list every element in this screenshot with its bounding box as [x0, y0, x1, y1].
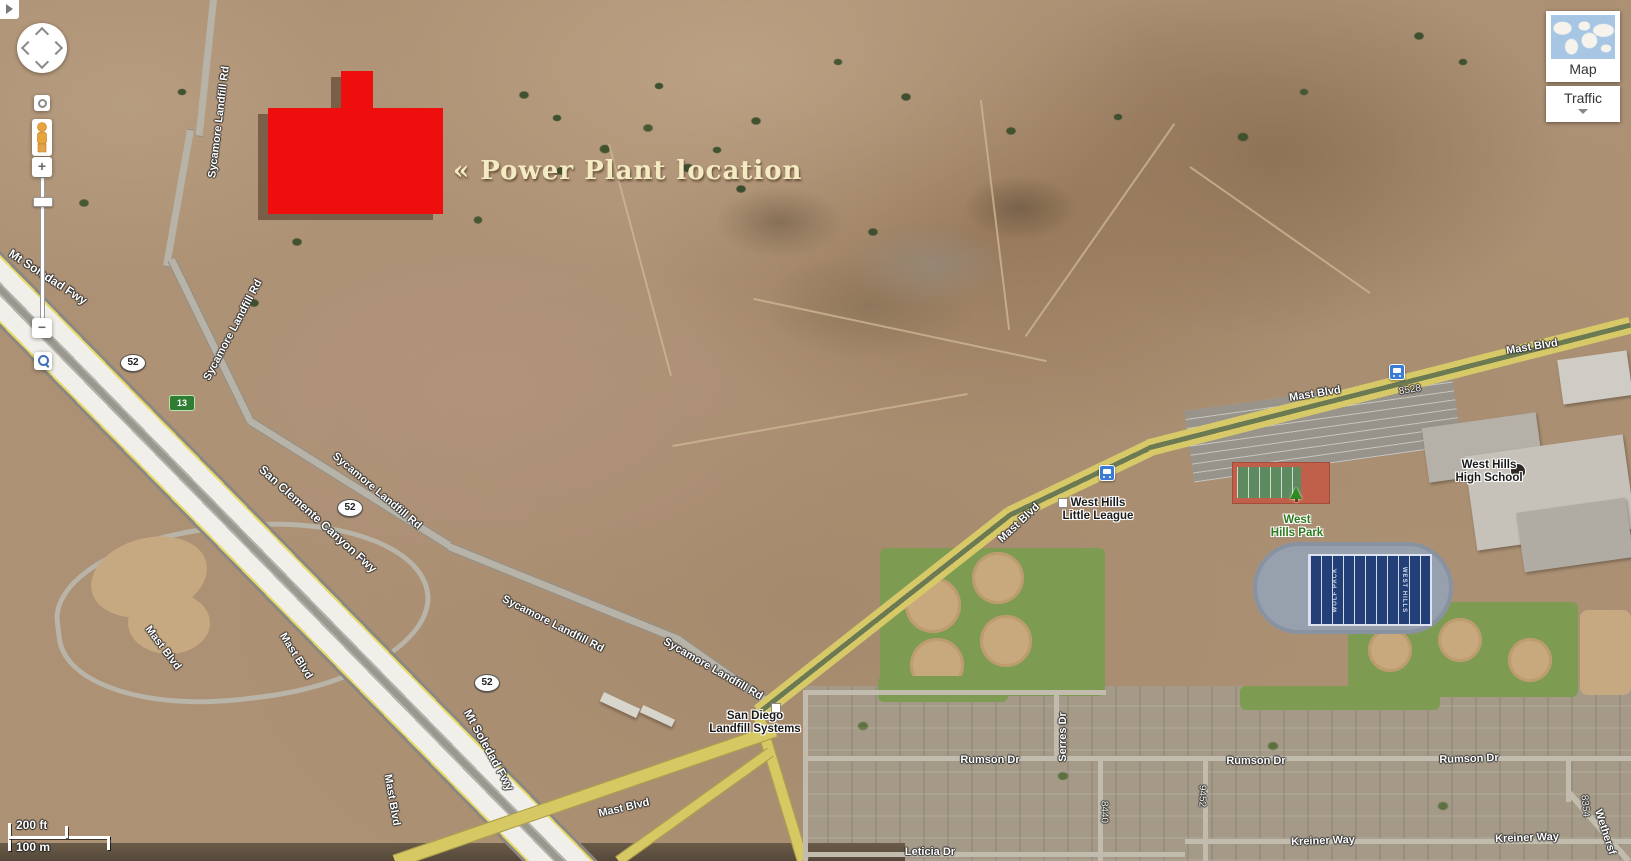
traffic-button[interactable]: Traffic — [1546, 86, 1620, 122]
road-label: Leticia Dr — [905, 846, 955, 858]
route-52-shield: 52 — [337, 499, 363, 517]
chevron-down-icon[interactable] — [35, 55, 49, 69]
route-52-shield: 52 — [120, 354, 146, 372]
poi-label[interactable]: West HillsHigh School — [1455, 459, 1522, 485]
poi-label-line: Landfill Systems — [709, 723, 800, 736]
caret-down-icon — [1578, 109, 1588, 114]
poi-label-line: West Hills — [1063, 497, 1134, 510]
map-view-label: Map — [1546, 61, 1620, 77]
scale-bar-m-tick — [107, 836, 110, 850]
poi-label-line: San Diego — [709, 710, 800, 723]
zoom-slider-handle[interactable] — [33, 197, 53, 207]
power-plant-annotation-text: « Power Plant location — [453, 156, 802, 186]
world-map-thumbnail — [1551, 15, 1615, 59]
poi-label-line: Little League — [1063, 510, 1134, 523]
endzone-text-east: WEST HILLS — [1401, 567, 1407, 613]
pan-control[interactable] — [17, 23, 67, 73]
road-label: Rumson Dr — [1226, 755, 1285, 767]
poi-label[interactable]: WestHills Park — [1271, 514, 1323, 540]
baseball-diamond — [972, 552, 1024, 604]
power-plant-shape — [268, 108, 443, 214]
poi-marker[interactable] — [1058, 498, 1068, 508]
scale-bar-line — [8, 836, 110, 839]
park-strip — [1240, 686, 1440, 710]
baseball-diamond — [1508, 638, 1552, 682]
pegman-streetview-control[interactable] — [32, 119, 52, 156]
residential-road — [803, 690, 808, 861]
road-label: Kreiner Way — [1495, 831, 1559, 845]
poi-label-line: West Hills — [1455, 459, 1522, 472]
scale-metric-label: 100 m — [16, 840, 50, 854]
transit-stop-icon[interactable] — [1099, 465, 1115, 481]
football-field: WOLF PACK WEST HILLS — [1308, 554, 1432, 626]
chevron-right-icon[interactable] — [49, 41, 63, 55]
street-number-label: 8354 — [1579, 794, 1592, 817]
magnifier-handle — [45, 363, 50, 368]
residential-road — [806, 690, 1106, 695]
chevron-up-icon[interactable] — [35, 27, 49, 41]
overview-zoom-button[interactable] — [34, 352, 52, 370]
exit-badge: 13 — [169, 395, 195, 411]
road-label: Serres Dr — [1057, 712, 1069, 762]
poi-label-line: High School — [1455, 472, 1522, 485]
route-52-shield: 52 — [474, 674, 500, 692]
poi-label-line: Hills Park — [1271, 527, 1323, 540]
poi-label-line: West — [1271, 514, 1323, 527]
residential-road — [1203, 757, 1208, 861]
baseball-diamond — [1368, 628, 1412, 672]
leticia-dr-road — [806, 852, 1185, 857]
poi-label[interactable]: West HillsLittle League — [1063, 497, 1134, 523]
scale-bar-ft-tick — [65, 826, 68, 838]
road-label: Rumson Dr — [960, 754, 1019, 766]
collapse-panel-button[interactable] — [0, 0, 19, 19]
park-tree-icon[interactable] — [1290, 487, 1302, 499]
poi-marker[interactable] — [771, 703, 781, 713]
poi-label[interactable]: San DiegoLandfill Systems — [709, 710, 800, 736]
kreiner-way-road — [1185, 839, 1631, 844]
street-number-label: 9452 — [1197, 785, 1208, 807]
baseball-diamond — [1438, 618, 1482, 662]
map-canvas[interactable]: WOLF PACK WEST HILLS « Power Plant locat… — [0, 0, 1631, 861]
chevron-left-icon[interactable] — [21, 41, 35, 55]
tennis-courts — [1232, 462, 1330, 504]
zoom-out-button[interactable]: − — [32, 318, 52, 338]
dirt-patch — [128, 592, 210, 654]
scale-imperial-label: 200 ft — [16, 818, 47, 832]
road-label: Rumson Dr — [1439, 752, 1499, 766]
zoom-in-button[interactable]: + — [32, 157, 52, 177]
pegman-icon — [35, 122, 49, 153]
dirt-field — [1580, 610, 1631, 695]
transit-stop-icon[interactable] — [1389, 364, 1405, 380]
rumson-dr-road — [806, 756, 1631, 761]
power-plant-chimney — [341, 71, 373, 109]
street-number-label: 8440 — [1099, 801, 1110, 823]
road-label: Kreiner Way — [1291, 834, 1355, 848]
park-strip — [878, 676, 1008, 702]
endzone-text-west: WOLF PACK — [1332, 568, 1338, 613]
traffic-label: Traffic — [1546, 90, 1620, 106]
map-view-button[interactable]: Map — [1546, 11, 1620, 82]
reset-view-button[interactable] — [34, 95, 50, 111]
baseball-diamond — [980, 615, 1032, 667]
school-building — [1557, 350, 1631, 404]
